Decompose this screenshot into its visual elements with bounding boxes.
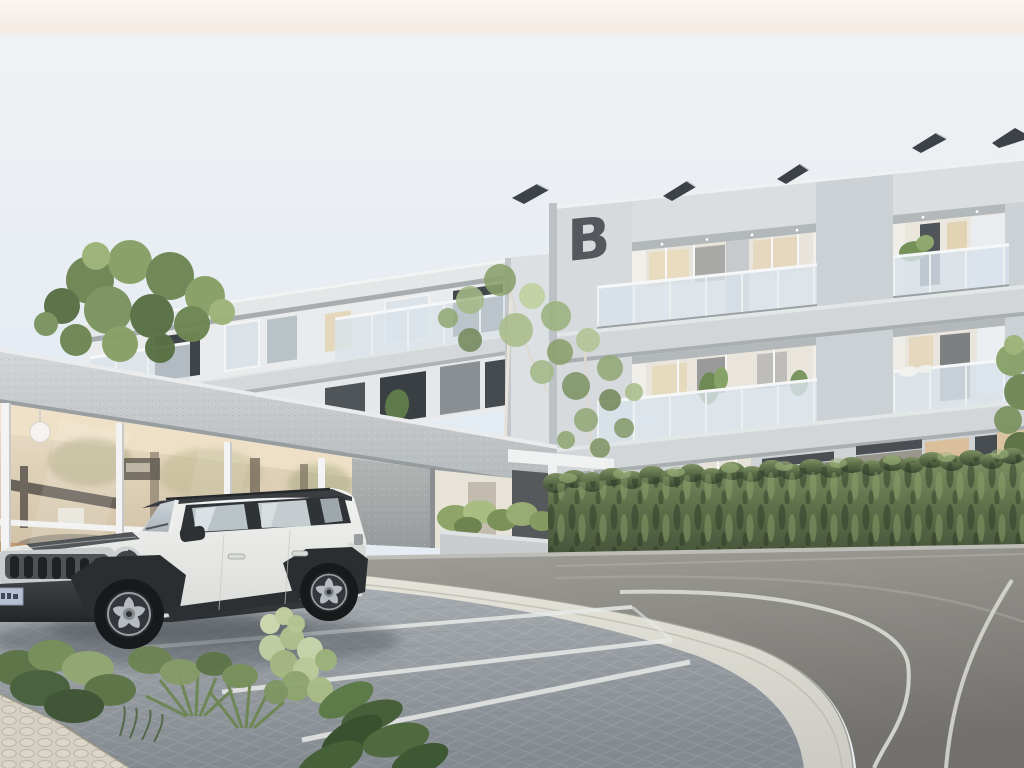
architectural-render: B — [0, 0, 1024, 768]
scene-canvas: B — [0, 0, 1024, 768]
door-handle-rear — [292, 551, 308, 556]
license-plate — [0, 588, 23, 605]
building-logo: B — [567, 205, 608, 275]
top-banner — [0, 0, 1024, 33]
building-corner-shade — [549, 203, 557, 470]
rear-wheel — [300, 563, 358, 621]
front-wheel — [94, 579, 164, 649]
door-handle — [228, 554, 245, 559]
taillight — [354, 534, 363, 545]
pendant-lamp — [30, 422, 50, 442]
banner-edge — [0, 30, 1024, 36]
